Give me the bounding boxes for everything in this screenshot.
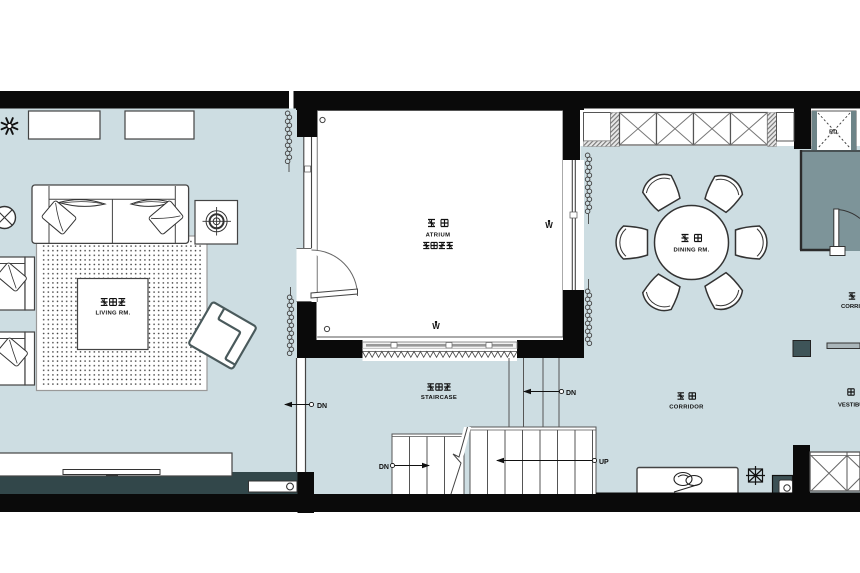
svg-text:■: ■ bbox=[435, 320, 438, 325]
svg-text:■: ■ bbox=[548, 219, 551, 224]
svg-text:CORRIDOR: CORRIDOR bbox=[841, 304, 860, 310]
svg-text:DN: DN bbox=[317, 403, 327, 410]
svg-text:RD.: RD. bbox=[829, 130, 839, 136]
svg-text:ATRIUM: ATRIUM bbox=[426, 233, 451, 239]
svg-text:CORRIDOR: CORRIDOR bbox=[669, 405, 704, 411]
svg-text:STAIRCASE: STAIRCASE bbox=[421, 395, 457, 401]
svg-text:VESTIBULE: VESTIBULE bbox=[838, 403, 860, 409]
svg-text:LIVING RM.: LIVING RM. bbox=[95, 311, 130, 317]
svg-text:UP: UP bbox=[599, 459, 609, 466]
svg-text:DN: DN bbox=[566, 390, 576, 397]
svg-text:DINING RM.: DINING RM. bbox=[673, 248, 709, 254]
svg-text:DN: DN bbox=[379, 464, 389, 471]
